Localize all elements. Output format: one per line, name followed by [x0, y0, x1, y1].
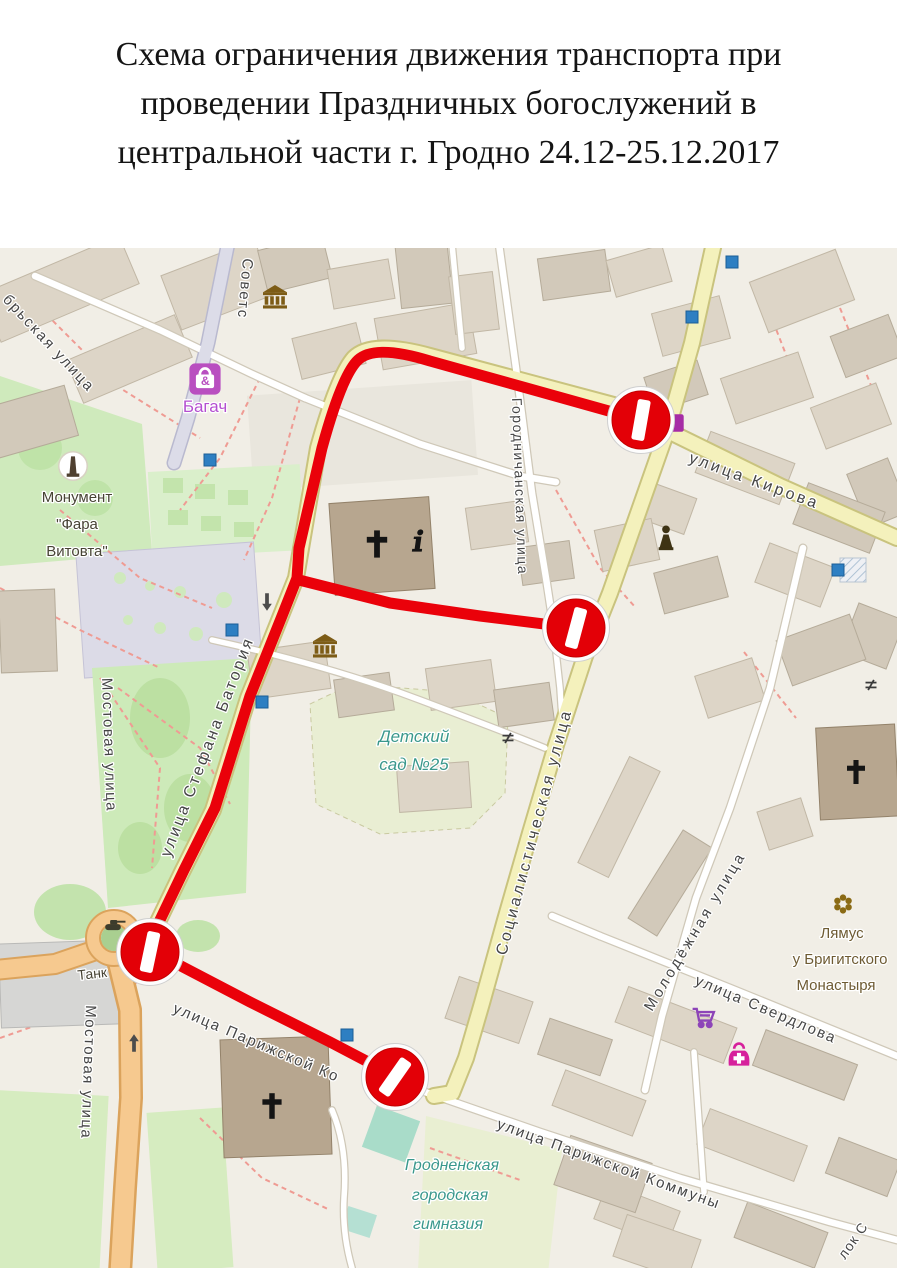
- poi-monument-line2: "Фара: [56, 516, 98, 533]
- poi-bagach: Багач: [183, 397, 227, 416]
- shop-bag-icon: [189, 363, 220, 394]
- poi-monument-line1: Монумент: [42, 489, 113, 506]
- no-entry-sign: [362, 1044, 429, 1111]
- blue-marker-icon: [204, 454, 216, 466]
- building: [395, 248, 454, 309]
- poi-detsad-line1: Детский: [377, 727, 450, 746]
- blue-marker-icon: [832, 564, 844, 576]
- poi-lyamus-line3: Монастыря: [796, 977, 875, 994]
- poi-gymnasium-line3: гимназия: [413, 1216, 483, 1233]
- no-entry-sign: [117, 919, 184, 986]
- blue-marker-icon: [686, 311, 698, 323]
- blue-marker-icon: [341, 1029, 353, 1041]
- map-canvas: &: [0, 248, 897, 1268]
- building: [0, 589, 57, 673]
- title-line-2: проведении Праздничных богослужений в: [0, 79, 897, 128]
- poi-gymnasium-line1: Гродненская: [405, 1157, 500, 1174]
- blue-marker-icon: [256, 696, 268, 708]
- blue-marker-icon: [726, 256, 738, 268]
- no-entry-sign: [608, 387, 675, 454]
- page-title: Схема ограничения движения транспорта пр…: [0, 30, 897, 177]
- poi-lyamus-line1: Лямус: [820, 925, 864, 942]
- poi-tank: Танк: [77, 964, 109, 983]
- poi-detsad-line2: сад №25: [379, 755, 449, 774]
- title-line-1: Схема ограничения движения транспорта пр…: [0, 30, 897, 79]
- building: [537, 249, 610, 300]
- poi-lyamus-line2: у Бригитского: [793, 951, 888, 968]
- building: [494, 682, 555, 727]
- page: { "title": { "lines": [ "Схема ограничен…: [0, 0, 897, 1280]
- traffic-restriction-map: &: [0, 248, 897, 1268]
- blue-marker-icon: [226, 624, 238, 636]
- monument-icon: [59, 452, 88, 481]
- title-line-3: центральной части г. Гродно 24.12-25.12.…: [0, 128, 897, 177]
- poi-monument-line3: Витовта": [46, 543, 107, 560]
- no-entry-sign: [543, 595, 610, 662]
- poi-gymnasium-line2: городская: [412, 1187, 489, 1204]
